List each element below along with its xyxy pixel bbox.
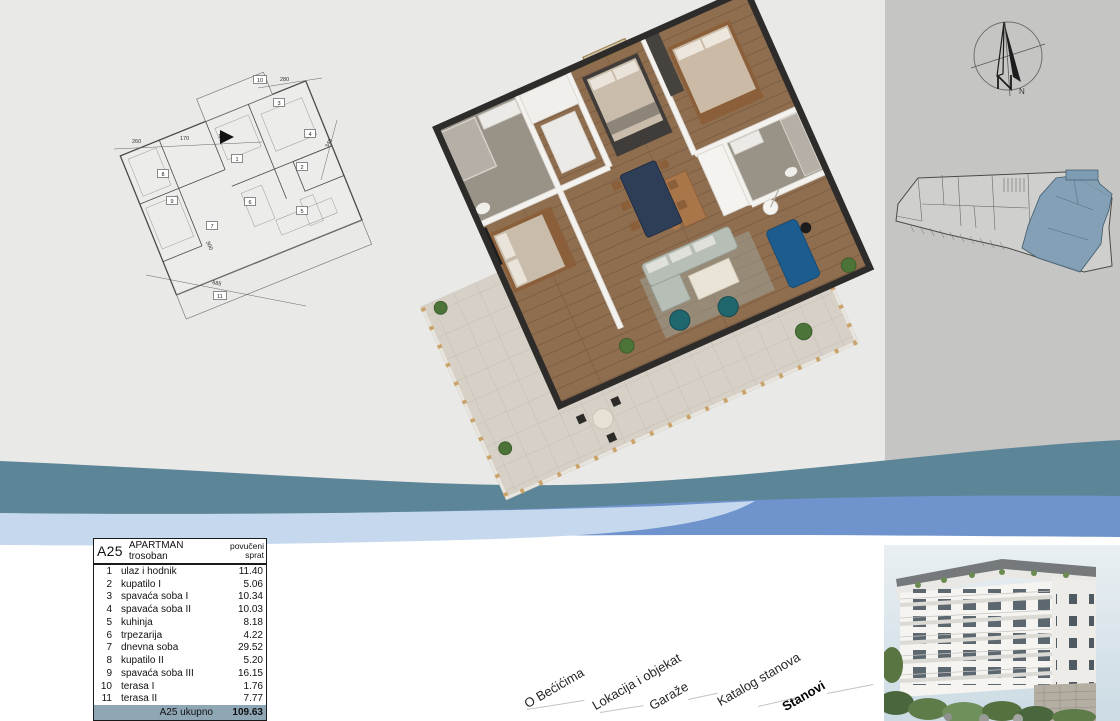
floor-plan-2d: 260 170 190 280 340 300 685 1 2 3 4 — [108, 48, 378, 333]
room-area: 4.22 — [223, 630, 266, 641]
room-tag: 2 — [297, 163, 308, 171]
room-tag: 4 — [305, 130, 316, 138]
table-row: 11 terasa II 7.77 — [94, 693, 266, 706]
room-area: 1.76 — [223, 681, 266, 692]
room-tag: 10 — [254, 76, 267, 84]
room-name: dnevna soba — [121, 642, 223, 653]
room-number: 9 — [94, 668, 112, 679]
compass-letter: N — [1019, 87, 1025, 96]
room-name: trpezarija — [121, 630, 223, 641]
room-area: 5.06 — [223, 579, 266, 590]
room-name: spavaća soba II — [121, 604, 223, 615]
total-label: A25 ukupno — [160, 707, 213, 718]
room-number: 4 — [94, 604, 112, 615]
floor-plan-3d — [355, 0, 885, 505]
room-tag: 3 — [274, 99, 285, 107]
table-row: 6 trpezarija 4.22 — [94, 629, 266, 642]
room-number: 5 — [94, 617, 112, 628]
room-number: 10 — [94, 681, 112, 692]
room-number: 11 — [94, 693, 112, 704]
room-name: kupatilo II — [121, 655, 223, 666]
room-name: kupatilo I — [121, 579, 223, 590]
unit-label: A25 — [97, 543, 123, 559]
room-tag: 9 — [167, 197, 178, 205]
svg-text:4: 4 — [308, 132, 311, 138]
dim-label: 260 — [132, 139, 141, 145]
svg-text:8: 8 — [161, 172, 164, 178]
dim-label: 170 — [180, 136, 189, 142]
room-name: spavaća soba I — [121, 591, 223, 602]
table-row: 10 terasa I 1.76 — [94, 680, 266, 693]
dim-label: 280 — [280, 77, 289, 83]
north-arrow-icon: N — [963, 16, 1053, 106]
room-name: kuhinja — [121, 617, 223, 628]
room-area: 7.77 — [223, 693, 266, 704]
svg-text:3: 3 — [277, 101, 280, 107]
room-name: spavaća soba III — [121, 668, 223, 679]
area-table-total: A25 ukupno 109.63 — [94, 705, 266, 720]
room-number: 8 — [94, 655, 112, 666]
page: N — [0, 0, 1120, 721]
room-tag: 8 — [158, 170, 169, 178]
table-row: 2 kupatilo I 5.06 — [94, 578, 266, 591]
total-value: 109.63 — [223, 707, 266, 718]
room-number: 2 — [94, 579, 112, 590]
room-number: 1 — [94, 566, 112, 577]
room-area: 10.03 — [223, 604, 266, 615]
table-row: 4 spavaća soba II 10.03 — [94, 603, 266, 616]
table-row: 8 kupatilo II 5.20 — [94, 654, 266, 667]
table-row: 5 kuhinja 8.18 — [94, 616, 266, 629]
svg-text:9: 9 — [170, 199, 173, 205]
table-row: 7 dnevna soba 29.52 — [94, 642, 266, 655]
svg-text:11: 11 — [217, 294, 223, 300]
room-area: 5.20 — [223, 655, 266, 666]
room-tag: 6 — [245, 198, 256, 206]
svg-text:2: 2 — [300, 165, 303, 171]
room-number: 6 — [94, 630, 112, 641]
room-name: ulaz i hodnik — [121, 566, 223, 577]
room-area: 11.40 — [223, 566, 266, 577]
area-table-header: A25 APARTMAN trosoban povučeni sprat — [94, 539, 266, 565]
room-area: 16.15 — [223, 668, 266, 679]
room-tag: 11 — [214, 292, 227, 300]
table-row: 1 ulaz i hodnik 11.40 — [94, 565, 266, 578]
room-number: 7 — [94, 642, 112, 653]
room-tag: 5 — [297, 207, 308, 215]
room-area: 8.18 — [223, 617, 266, 628]
svg-text:6: 6 — [248, 200, 251, 206]
room-area: 29.52 — [223, 642, 266, 653]
room-name: terasa II — [121, 693, 223, 704]
building-photo — [884, 545, 1120, 721]
room-number: 3 — [94, 591, 112, 602]
table-row: 9 spavaća soba III 16.15 — [94, 667, 266, 680]
room-area: 10.34 — [223, 591, 266, 602]
svg-text:5: 5 — [300, 209, 303, 215]
svg-text:1: 1 — [235, 157, 238, 163]
room-tag: 1 — [232, 155, 243, 163]
dim-label: 685 — [212, 280, 222, 288]
apartment-type-label: APARTMAN trosoban — [129, 540, 220, 562]
room-tag: 7 — [207, 222, 218, 230]
floor-label: povučeni sprat — [220, 542, 264, 560]
table-row: 3 spavaća soba I 10.34 — [94, 591, 266, 604]
area-table: A25 APARTMAN trosoban povučeni sprat 1 u… — [93, 538, 267, 721]
svg-text:7: 7 — [210, 224, 213, 230]
svg-text:10: 10 — [257, 78, 263, 84]
area-table-body: 1 ulaz i hodnik 11.40 2 kupatilo I 5.06 … — [94, 565, 266, 705]
room-name: terasa I — [121, 681, 223, 692]
key-plan — [888, 166, 1118, 278]
